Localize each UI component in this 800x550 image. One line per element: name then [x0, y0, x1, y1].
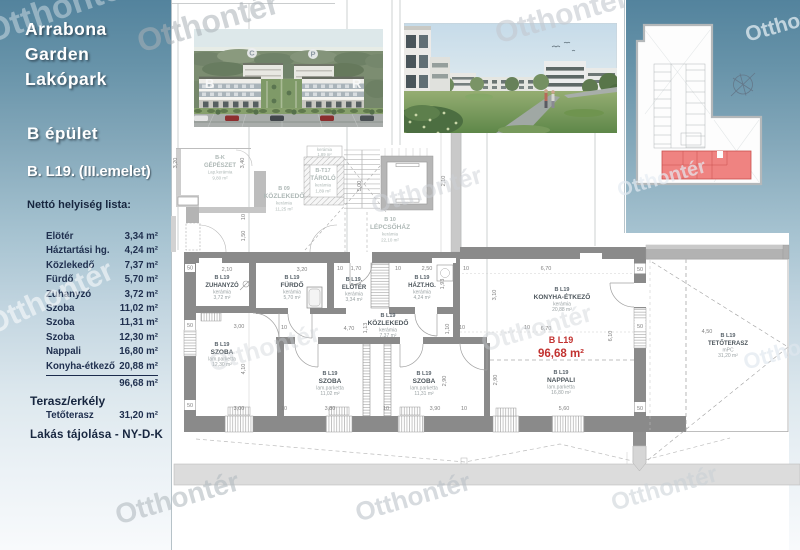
svg-text:50: 50: [637, 324, 643, 330]
svg-text:3,72 m²: 3,72 m²: [214, 295, 231, 301]
svg-text:11,02 m²: 11,02 m²: [320, 391, 340, 397]
svg-text:3,80: 3,80: [325, 406, 336, 412]
svg-text:5,70 m²: 5,70 m²: [284, 295, 301, 301]
svg-text:B L19: B L19: [549, 335, 574, 345]
svg-text:50: 50: [637, 406, 643, 412]
svg-text:kerámia: kerámia: [315, 183, 332, 188]
svg-text:B 10: B 10: [384, 217, 396, 223]
svg-text:1,10: 1,10: [445, 324, 451, 335]
svg-text:NAPPALI: NAPPALI: [547, 377, 575, 384]
svg-text:3,10: 3,10: [492, 290, 498, 301]
svg-text:B L19: B L19: [415, 275, 430, 281]
svg-text:C: C: [249, 49, 255, 58]
svg-text:2,10: 2,10: [441, 176, 447, 187]
svg-text:SZOBA: SZOBA: [211, 349, 234, 356]
svg-text:B 09: B 09: [278, 186, 290, 192]
svg-text:2,90: 2,90: [493, 375, 499, 386]
svg-text:1,93: 1,93: [440, 279, 446, 290]
svg-text:R: R: [352, 76, 362, 91]
svg-text:50: 50: [187, 266, 193, 272]
svg-text:B-T17: B-T17: [315, 168, 330, 174]
svg-text:B L19: B L19: [417, 371, 432, 377]
svg-text:4,70: 4,70: [344, 326, 355, 332]
svg-text:11,31 m²: 11,31 m²: [414, 391, 434, 397]
svg-text:GÉPÉSZET: GÉPÉSZET: [204, 161, 236, 169]
svg-text:96,68 m²: 96,68 m²: [538, 348, 584, 360]
svg-text:3,20: 3,20: [173, 158, 179, 169]
svg-text:B-K: B-K: [215, 155, 225, 161]
svg-text:SZOBA: SZOBA: [319, 378, 342, 385]
svg-text:LÉPCSŐHÁZ: LÉPCSŐHÁZ: [370, 222, 410, 231]
svg-text:B L19: B L19: [215, 342, 230, 348]
svg-text:HÁZT.HG.: HÁZT.HG.: [408, 282, 436, 289]
svg-text:3,20: 3,20: [297, 267, 308, 273]
svg-text:B L19.: B L19.: [346, 277, 363, 283]
svg-text:SZOBA: SZOBA: [413, 378, 436, 385]
svg-text:ZUHANYZÓ: ZUHANYZÓ: [205, 281, 239, 289]
svg-text:1,13: 1,13: [363, 323, 369, 334]
svg-text:10: 10: [337, 266, 343, 272]
svg-text:1,89 m²: 1,89 m²: [317, 152, 332, 157]
svg-text:B L19: B L19: [381, 313, 396, 319]
svg-text:20,88 m²: 20,88 m²: [552, 307, 572, 313]
svg-text:16,80 m²: 16,80 m²: [551, 390, 571, 396]
svg-text:6,70: 6,70: [541, 326, 552, 332]
svg-text:ELŐTÉR: ELŐTÉR: [342, 283, 367, 291]
svg-text:50: 50: [187, 323, 193, 329]
svg-text:3,00: 3,00: [234, 406, 245, 412]
svg-text:TETŐTERASZ: TETŐTERASZ: [708, 340, 748, 347]
svg-text:kerámia: kerámia: [276, 201, 293, 206]
svg-text:10: 10: [459, 325, 465, 331]
svg-text:50: 50: [187, 403, 193, 409]
svg-text:10: 10: [395, 266, 401, 272]
svg-text:10: 10: [461, 406, 467, 412]
svg-text:B L19: B L19: [215, 275, 230, 281]
svg-text:31,20 m²: 31,20 m²: [718, 353, 738, 359]
svg-text:10: 10: [281, 325, 287, 331]
svg-text:10: 10: [281, 406, 287, 412]
svg-text:4,10: 4,10: [241, 364, 247, 375]
svg-text:11,25 m²: 11,25 m²: [275, 207, 293, 212]
svg-text:KÖZLEKEDŐ: KÖZLEKEDŐ: [368, 318, 409, 327]
svg-text:P: P: [310, 50, 315, 59]
svg-text:3,00: 3,00: [234, 324, 245, 330]
svg-text:10: 10: [524, 325, 530, 331]
svg-text:2,90: 2,90: [442, 376, 448, 387]
svg-text:5,00: 5,00: [357, 181, 363, 192]
svg-text:FÜRDŐ: FÜRDŐ: [280, 280, 303, 289]
svg-text:50: 50: [637, 267, 643, 273]
svg-text:3,90: 3,90: [430, 406, 441, 412]
svg-text:5,60: 5,60: [559, 406, 570, 412]
svg-text:10: 10: [463, 266, 469, 272]
svg-text:4,24 m²: 4,24 m²: [414, 295, 431, 301]
svg-text:3,40: 3,40: [240, 158, 246, 169]
svg-text:12,30 m²: 12,30 m²: [212, 362, 232, 368]
svg-text:B L19: B L19: [721, 333, 736, 339]
svg-text:KÖZLEKEDŐ: KÖZLEKEDŐ: [264, 191, 305, 200]
svg-text:10: 10: [241, 214, 247, 220]
svg-text:3,34 m²: 3,34 m²: [346, 297, 363, 303]
svg-text:TÁROLÓ: TÁROLÓ: [310, 174, 336, 182]
svg-text:1,70: 1,70: [351, 266, 362, 272]
svg-text:4,50: 4,50: [702, 329, 713, 335]
svg-text:2,10: 2,10: [222, 267, 233, 273]
svg-text:1,89 m²: 1,89 m²: [315, 189, 331, 194]
svg-text:2,50: 2,50: [422, 266, 433, 272]
svg-text:B L19: B L19: [554, 370, 569, 376]
svg-text:KONYHA-ÉTKEZŐ: KONYHA-ÉTKEZŐ: [534, 292, 591, 301]
svg-text:7,37 m²: 7,37 m²: [380, 333, 397, 339]
svg-text:B L19: B L19: [555, 287, 570, 293]
svg-text:1,50: 1,50: [241, 231, 247, 242]
svg-text:6,70: 6,70: [541, 266, 552, 272]
svg-text:B: B: [205, 76, 214, 91]
svg-text:6,10: 6,10: [608, 331, 614, 342]
svg-text:kerámia: kerámia: [382, 232, 399, 237]
svg-text:Lap.kerámia: Lap.kerámia: [208, 170, 233, 175]
svg-text:10: 10: [383, 406, 389, 412]
svg-text:9,80 m²: 9,80 m²: [212, 176, 228, 181]
svg-text:B L19: B L19: [285, 275, 300, 281]
svg-text:22,10 m²: 22,10 m²: [381, 238, 399, 243]
svg-text:B L19: B L19: [323, 371, 338, 377]
